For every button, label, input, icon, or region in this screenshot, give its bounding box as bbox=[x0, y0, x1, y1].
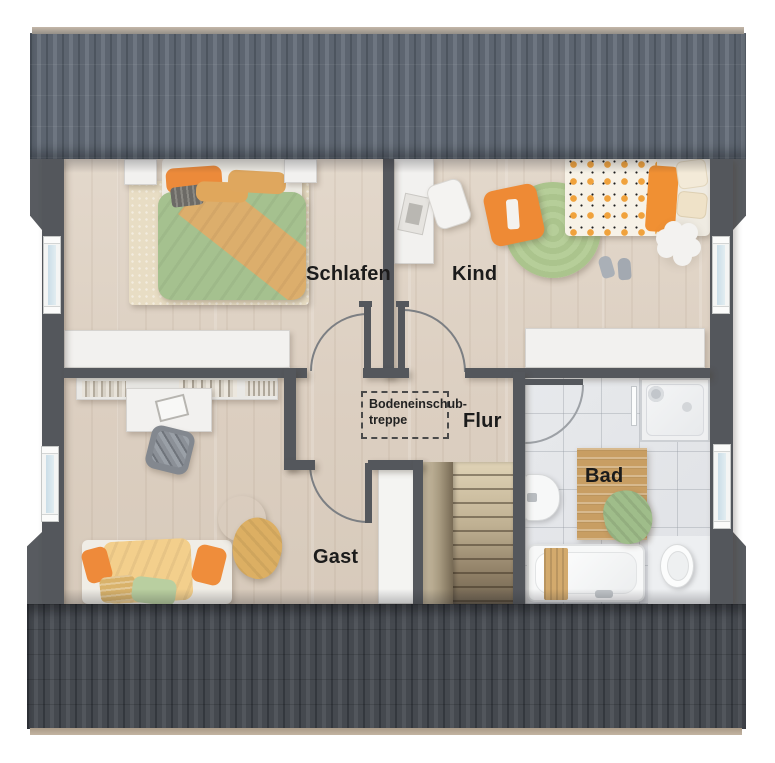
window-frame-cap bbox=[44, 237, 60, 244]
room-label-kind: Kind bbox=[452, 263, 497, 286]
window-frame-cap bbox=[714, 445, 730, 452]
attic-hatch-label-line1: Bodeneinschub- bbox=[369, 396, 447, 412]
wall-bad-left bbox=[513, 372, 525, 604]
window-frame-cap bbox=[713, 237, 729, 244]
door-arc-kind bbox=[403, 310, 465, 372]
window-bad bbox=[713, 444, 731, 529]
wall-gast-flur-vertical bbox=[284, 368, 296, 470]
door-leaf-kind bbox=[398, 305, 405, 372]
door-leaf-gast bbox=[365, 463, 372, 523]
attic-hatch-label-line2: treppe bbox=[369, 412, 447, 428]
roof-bottom bbox=[27, 604, 746, 729]
room-label-flur: Flur bbox=[463, 410, 502, 433]
room-label-schlafen: Schlafen bbox=[306, 263, 391, 286]
window-frame-cap bbox=[713, 306, 729, 313]
wall-schlafen-flur bbox=[64, 368, 307, 378]
wall-kind-bad bbox=[465, 368, 710, 378]
window-schlafen bbox=[43, 236, 61, 314]
window-glass bbox=[48, 245, 56, 305]
roof-ridge-bottom bbox=[30, 728, 742, 735]
door-leaf-schlafen-cap bbox=[359, 301, 372, 307]
window-frame-cap bbox=[42, 514, 58, 521]
window-gast bbox=[41, 446, 59, 522]
window-frame-cap bbox=[44, 306, 60, 313]
window-glass bbox=[46, 455, 54, 513]
attic-hatch-outline: Bodeneinschub- treppe bbox=[361, 391, 449, 439]
wall-gast-top-left bbox=[284, 460, 315, 470]
window-kind bbox=[712, 236, 730, 314]
door-arc-bad bbox=[525, 385, 583, 443]
wall-stair-left bbox=[413, 460, 423, 604]
roof-top bbox=[30, 33, 746, 159]
window-frame-cap bbox=[42, 447, 58, 454]
window-frame-cap bbox=[714, 521, 730, 528]
room-label-gast: Gast bbox=[313, 546, 358, 569]
door-arc-schlafen bbox=[311, 314, 368, 371]
floorplan-canvas: Schlafen Kind Flur Gast Bad Bodeneinschu… bbox=[0, 0, 775, 763]
roof-ridge-top bbox=[32, 27, 744, 34]
door-arc-gast bbox=[310, 464, 368, 522]
window-glass bbox=[717, 245, 725, 305]
door-leaf-kind-cap bbox=[396, 301, 409, 307]
window-glass bbox=[718, 453, 726, 520]
door-leaf-schlafen bbox=[364, 305, 371, 370]
wall-exterior-right bbox=[710, 158, 733, 604]
wall-exterior-left bbox=[42, 158, 64, 604]
room-label-bad: Bad bbox=[585, 465, 623, 488]
door-leaf-bad bbox=[525, 379, 583, 385]
